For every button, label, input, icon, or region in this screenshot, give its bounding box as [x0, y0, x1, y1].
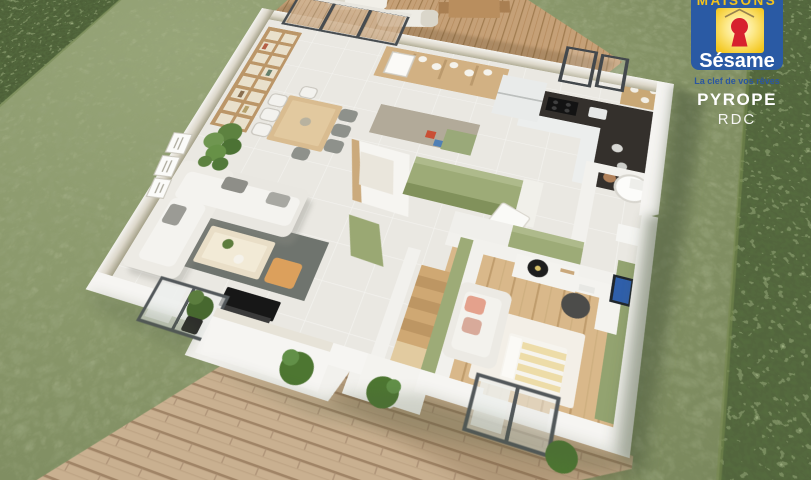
svg-text:RDC: RDC [718, 111, 757, 128]
svg-text:MAISONS: MAISONS [697, 0, 778, 8]
svg-text:PYROPE: PYROPE [697, 90, 777, 109]
svg-text:La clef de vos rêves: La clef de vos rêves [694, 76, 780, 86]
svg-text:Sésame: Sésame [699, 50, 775, 72]
